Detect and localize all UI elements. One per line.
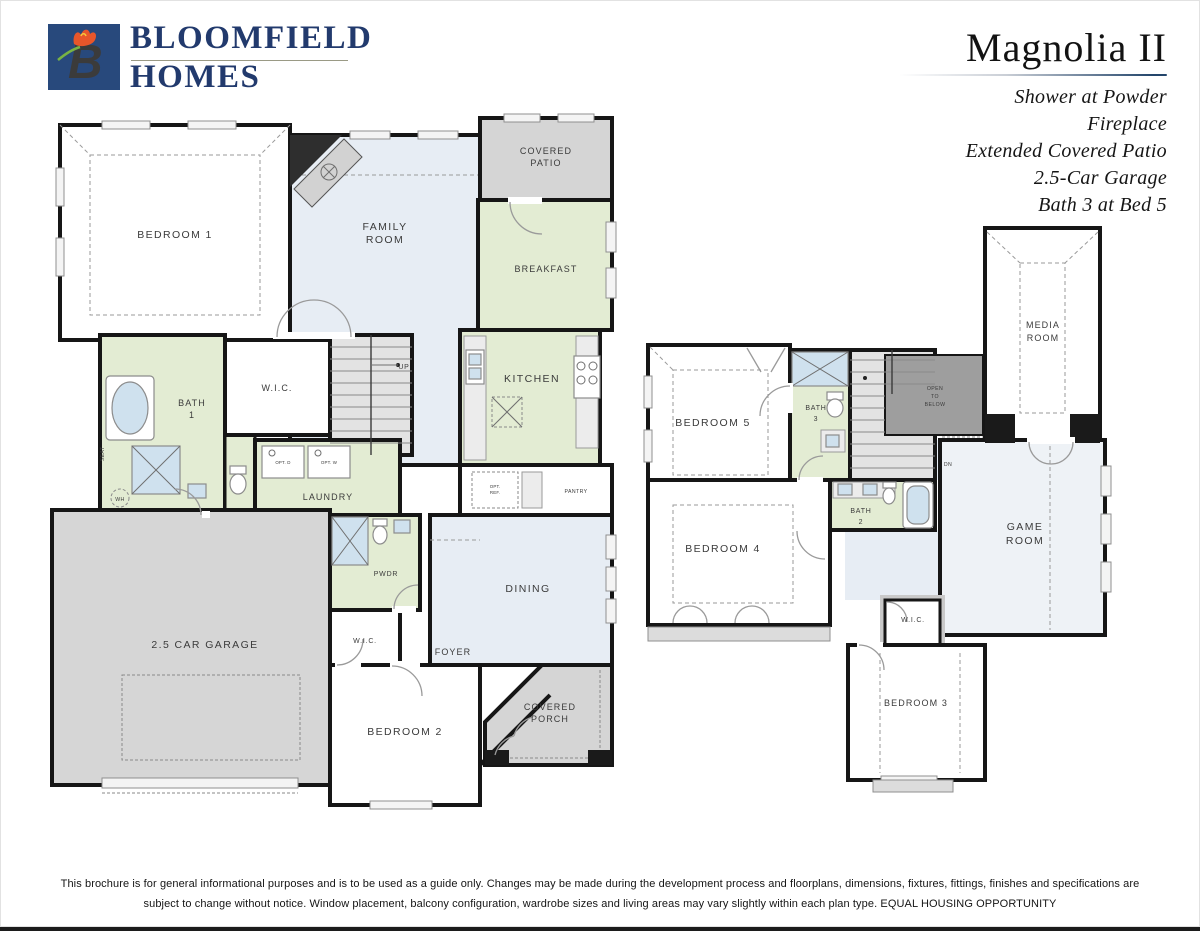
room-label: GAME [1007, 521, 1044, 533]
window [644, 430, 652, 462]
plan-option: 2.5-Car Garage [966, 165, 1167, 192]
room-label: PWDR [374, 571, 399, 578]
opt-ref-label: REF. [490, 490, 500, 495]
room-label: ROOM [366, 234, 404, 246]
bath2-toilet-icon [883, 482, 896, 504]
plan-title-rule [899, 74, 1167, 76]
roof-ledge [648, 627, 830, 641]
room-label: PANTRY [565, 489, 588, 495]
open-to-below-label: OPEN [927, 386, 943, 392]
room-label: BATH [805, 405, 826, 412]
dn-arrow-dot [863, 376, 867, 380]
window [188, 121, 236, 129]
brand-name-line1: BLOOMFIELD [130, 22, 372, 55]
room-label: 2 [859, 519, 864, 526]
bath2-tub-icon [903, 482, 933, 528]
window [418, 131, 458, 139]
toilet-tank [373, 519, 387, 526]
room-label: 1 [189, 410, 195, 420]
first-floor-plan: BEDROOM 1 FAMILY ROOM COVERED PATIO BREA… [40, 110, 620, 810]
bath3-shower-icon [792, 352, 848, 386]
stairs-label: UP [398, 364, 409, 371]
bay-window [606, 599, 616, 623]
door-gap [797, 477, 823, 484]
room-label: 2.5 CAR GARAGE [151, 639, 258, 651]
window [1101, 466, 1111, 496]
porch-column [485, 750, 509, 765]
water-heater-label: WH [115, 497, 124, 503]
door-gap [795, 526, 823, 533]
room-label: BATH [850, 508, 871, 515]
plan-option: Bath 3 at Bed 5 [966, 192, 1167, 219]
bath1-shower-icon [132, 446, 180, 494]
room-label: COVERED [524, 702, 576, 712]
sink-basin [469, 354, 481, 365]
open-to-below-label: BELOW [925, 402, 946, 408]
second-floor-rooms [648, 228, 1105, 780]
room-label: ROOM [1006, 535, 1044, 547]
door-gap [786, 383, 793, 413]
room-label: BEDROOM 4 [685, 543, 761, 555]
tub-basin [112, 382, 148, 434]
stove-icon [574, 356, 600, 398]
bedroom-3-room [848, 645, 985, 780]
bay-window [606, 535, 616, 559]
window [56, 168, 64, 206]
window [606, 268, 616, 298]
appliance-label: OPT. W [321, 460, 338, 465]
media-wall-block [985, 414, 1015, 443]
powder-sink-icon [394, 520, 410, 533]
door-gap [390, 661, 420, 668]
room-label: PATIO [530, 158, 561, 168]
room-label: LAUNDRY [303, 492, 354, 502]
porch-column [588, 750, 612, 765]
room-label: BATH [178, 398, 206, 408]
room-label: ROOM [1027, 333, 1059, 343]
powder-shower-icon [332, 517, 368, 565]
disclaimer-line1: This brochure is for general information… [0, 874, 1200, 894]
brand-underline [131, 60, 348, 61]
sink-basin [469, 368, 481, 379]
room-label: DINING [505, 583, 550, 595]
bath3-sink-icon [821, 430, 845, 452]
disclaimer-line2: subject to change without notice. Window… [0, 894, 1200, 914]
room-label: BEDROOM 3 [884, 698, 948, 708]
door-gap [202, 511, 210, 518]
door-gap [392, 606, 416, 613]
toilet-bowl [373, 526, 387, 544]
garage-door [102, 778, 298, 788]
room-label: KITCHEN [504, 373, 560, 385]
plan-option: Extended Covered Patio [966, 138, 1167, 165]
hall-corridor [845, 530, 940, 600]
window [606, 222, 616, 252]
room-label: FOYER [435, 647, 472, 657]
window [370, 801, 432, 809]
brand-name-line2: HOMES [130, 61, 372, 94]
room-label: W.I.C. [261, 383, 292, 393]
bath1-toilet-icon [230, 466, 246, 494]
window [504, 114, 540, 122]
plan-options-list: Shower at Powder Fireplace Extended Cove… [966, 84, 1167, 219]
open-to-below-label: TO [931, 394, 939, 400]
room-label: BEDROOM 5 [675, 417, 751, 429]
seat-label: SEAT [100, 446, 106, 461]
brand-name: BLOOMFIELD HOMES [130, 22, 372, 94]
opt-ref-label: OPT. [490, 484, 501, 489]
tub-basin [907, 486, 929, 524]
bath1-sink-icon [188, 484, 206, 498]
room-label: MEDIA [1026, 320, 1060, 330]
butler-counter [522, 472, 542, 508]
disclaimer: This brochure is for general information… [0, 874, 1200, 914]
plan-option: Fireplace [966, 111, 1167, 138]
toilet-bowl [827, 399, 843, 417]
sink-basin [826, 435, 839, 447]
powder-toilet-icon [373, 519, 387, 544]
door-gap [508, 197, 542, 204]
room-label: FAMILY [363, 221, 408, 233]
room-label: W.I.C. [901, 617, 925, 624]
room-label: BEDROOM 2 [367, 726, 443, 738]
window [102, 121, 150, 129]
room-label: BEDROOM 1 [137, 229, 213, 241]
bath2-sink-icon [838, 484, 852, 495]
bath3-toilet-icon [827, 392, 843, 417]
bloomfield-logo: B [48, 24, 120, 90]
stairs-label: DN [944, 462, 952, 468]
door-gap [1027, 437, 1075, 444]
window-bumpout [873, 780, 953, 792]
plan-option: Shower at Powder [966, 84, 1167, 111]
window [350, 131, 390, 139]
brochure-page: B BLOOMFIELD HOMES Magnolia II Shower at… [0, 0, 1200, 931]
room-label: PORCH [531, 714, 569, 724]
room-label: COVERED [520, 146, 572, 156]
window [644, 376, 652, 408]
room-label: W.I.C. [353, 638, 377, 645]
bay-window [606, 567, 616, 591]
second-floor-plan: MEDIA ROOM BEDROOM 5 BATH 3 OPEN TO BELO… [635, 218, 1120, 793]
toilet-bowl [230, 474, 246, 494]
room-label: BREAKFAST [515, 264, 578, 274]
room-label: 3 [814, 416, 819, 423]
toilet-tank [230, 466, 246, 474]
window [558, 114, 594, 122]
window [1101, 514, 1111, 544]
toilet-tank [883, 482, 896, 488]
plan-title: Magnolia II [966, 24, 1167, 71]
door-gap [273, 332, 355, 339]
appliance-label: OPT. D [275, 460, 290, 465]
window [56, 238, 64, 276]
bath2-sink-icon [863, 484, 877, 495]
toilet-bowl [883, 488, 895, 504]
bath1-tub-icon [106, 376, 154, 440]
window [1101, 562, 1111, 592]
